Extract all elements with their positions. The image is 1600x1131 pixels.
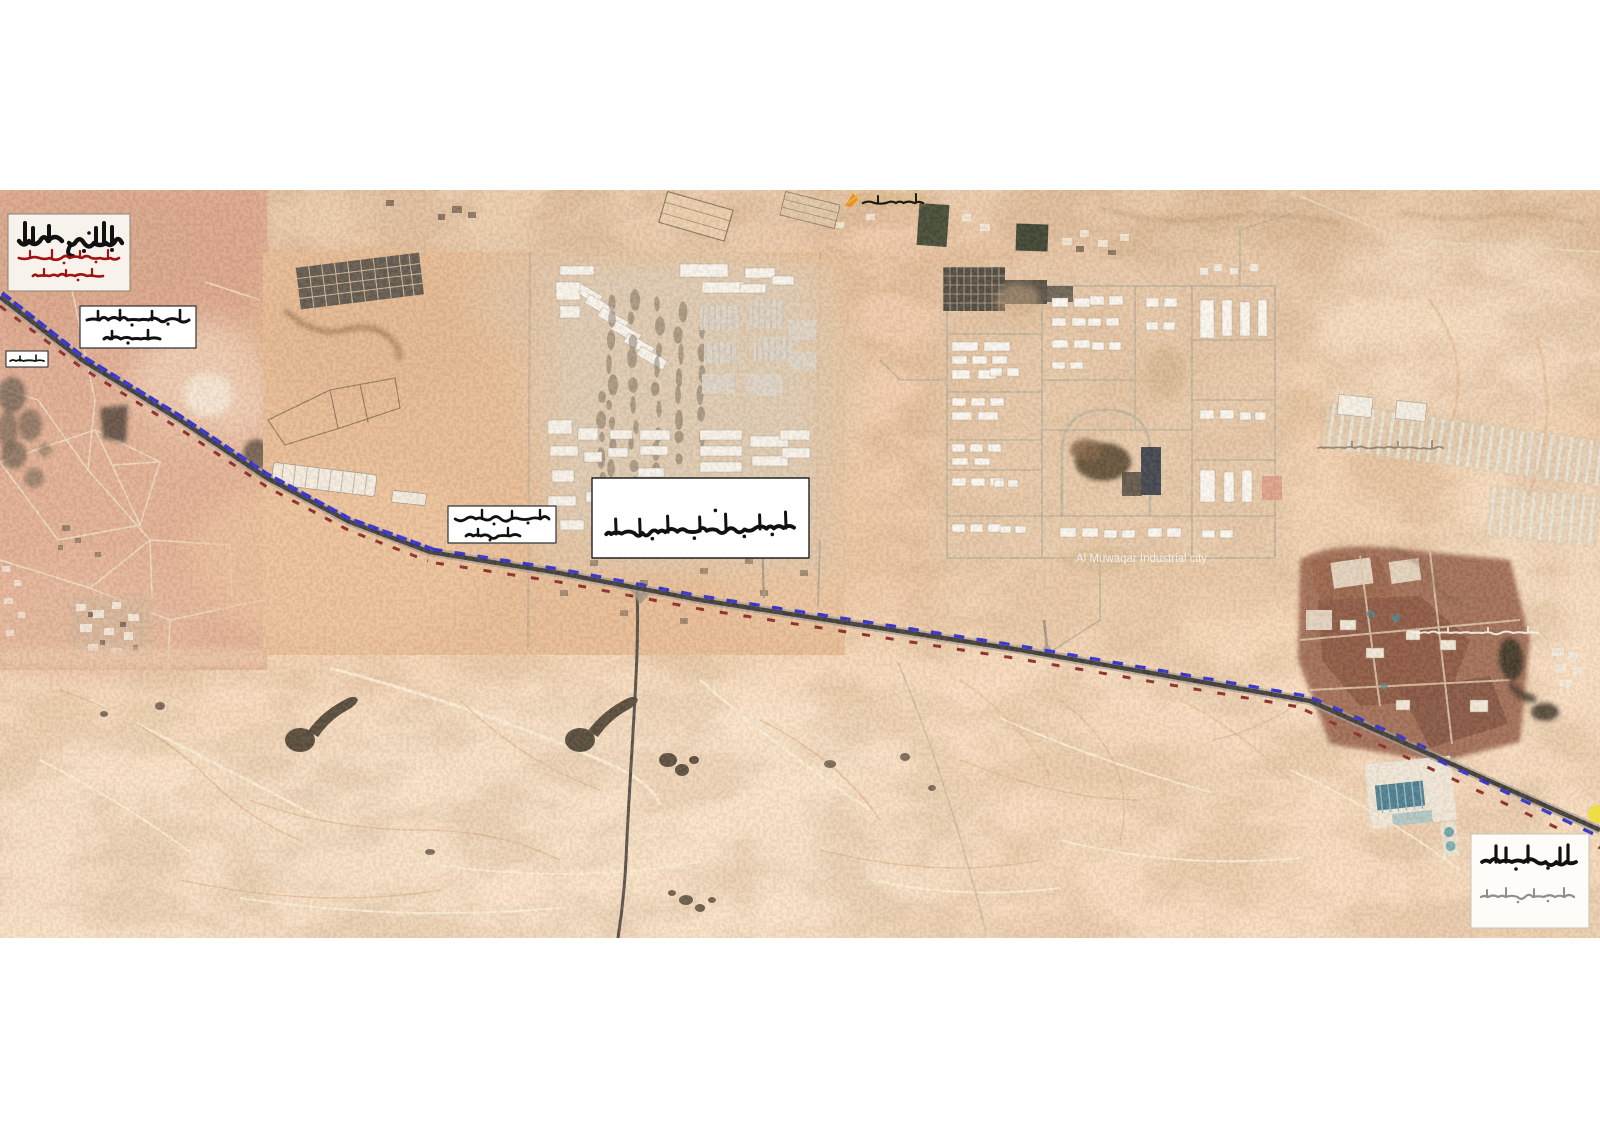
svg-text:Al Muwaqar Industrial city: Al Muwaqar Industrial city (1076, 553, 1207, 565)
